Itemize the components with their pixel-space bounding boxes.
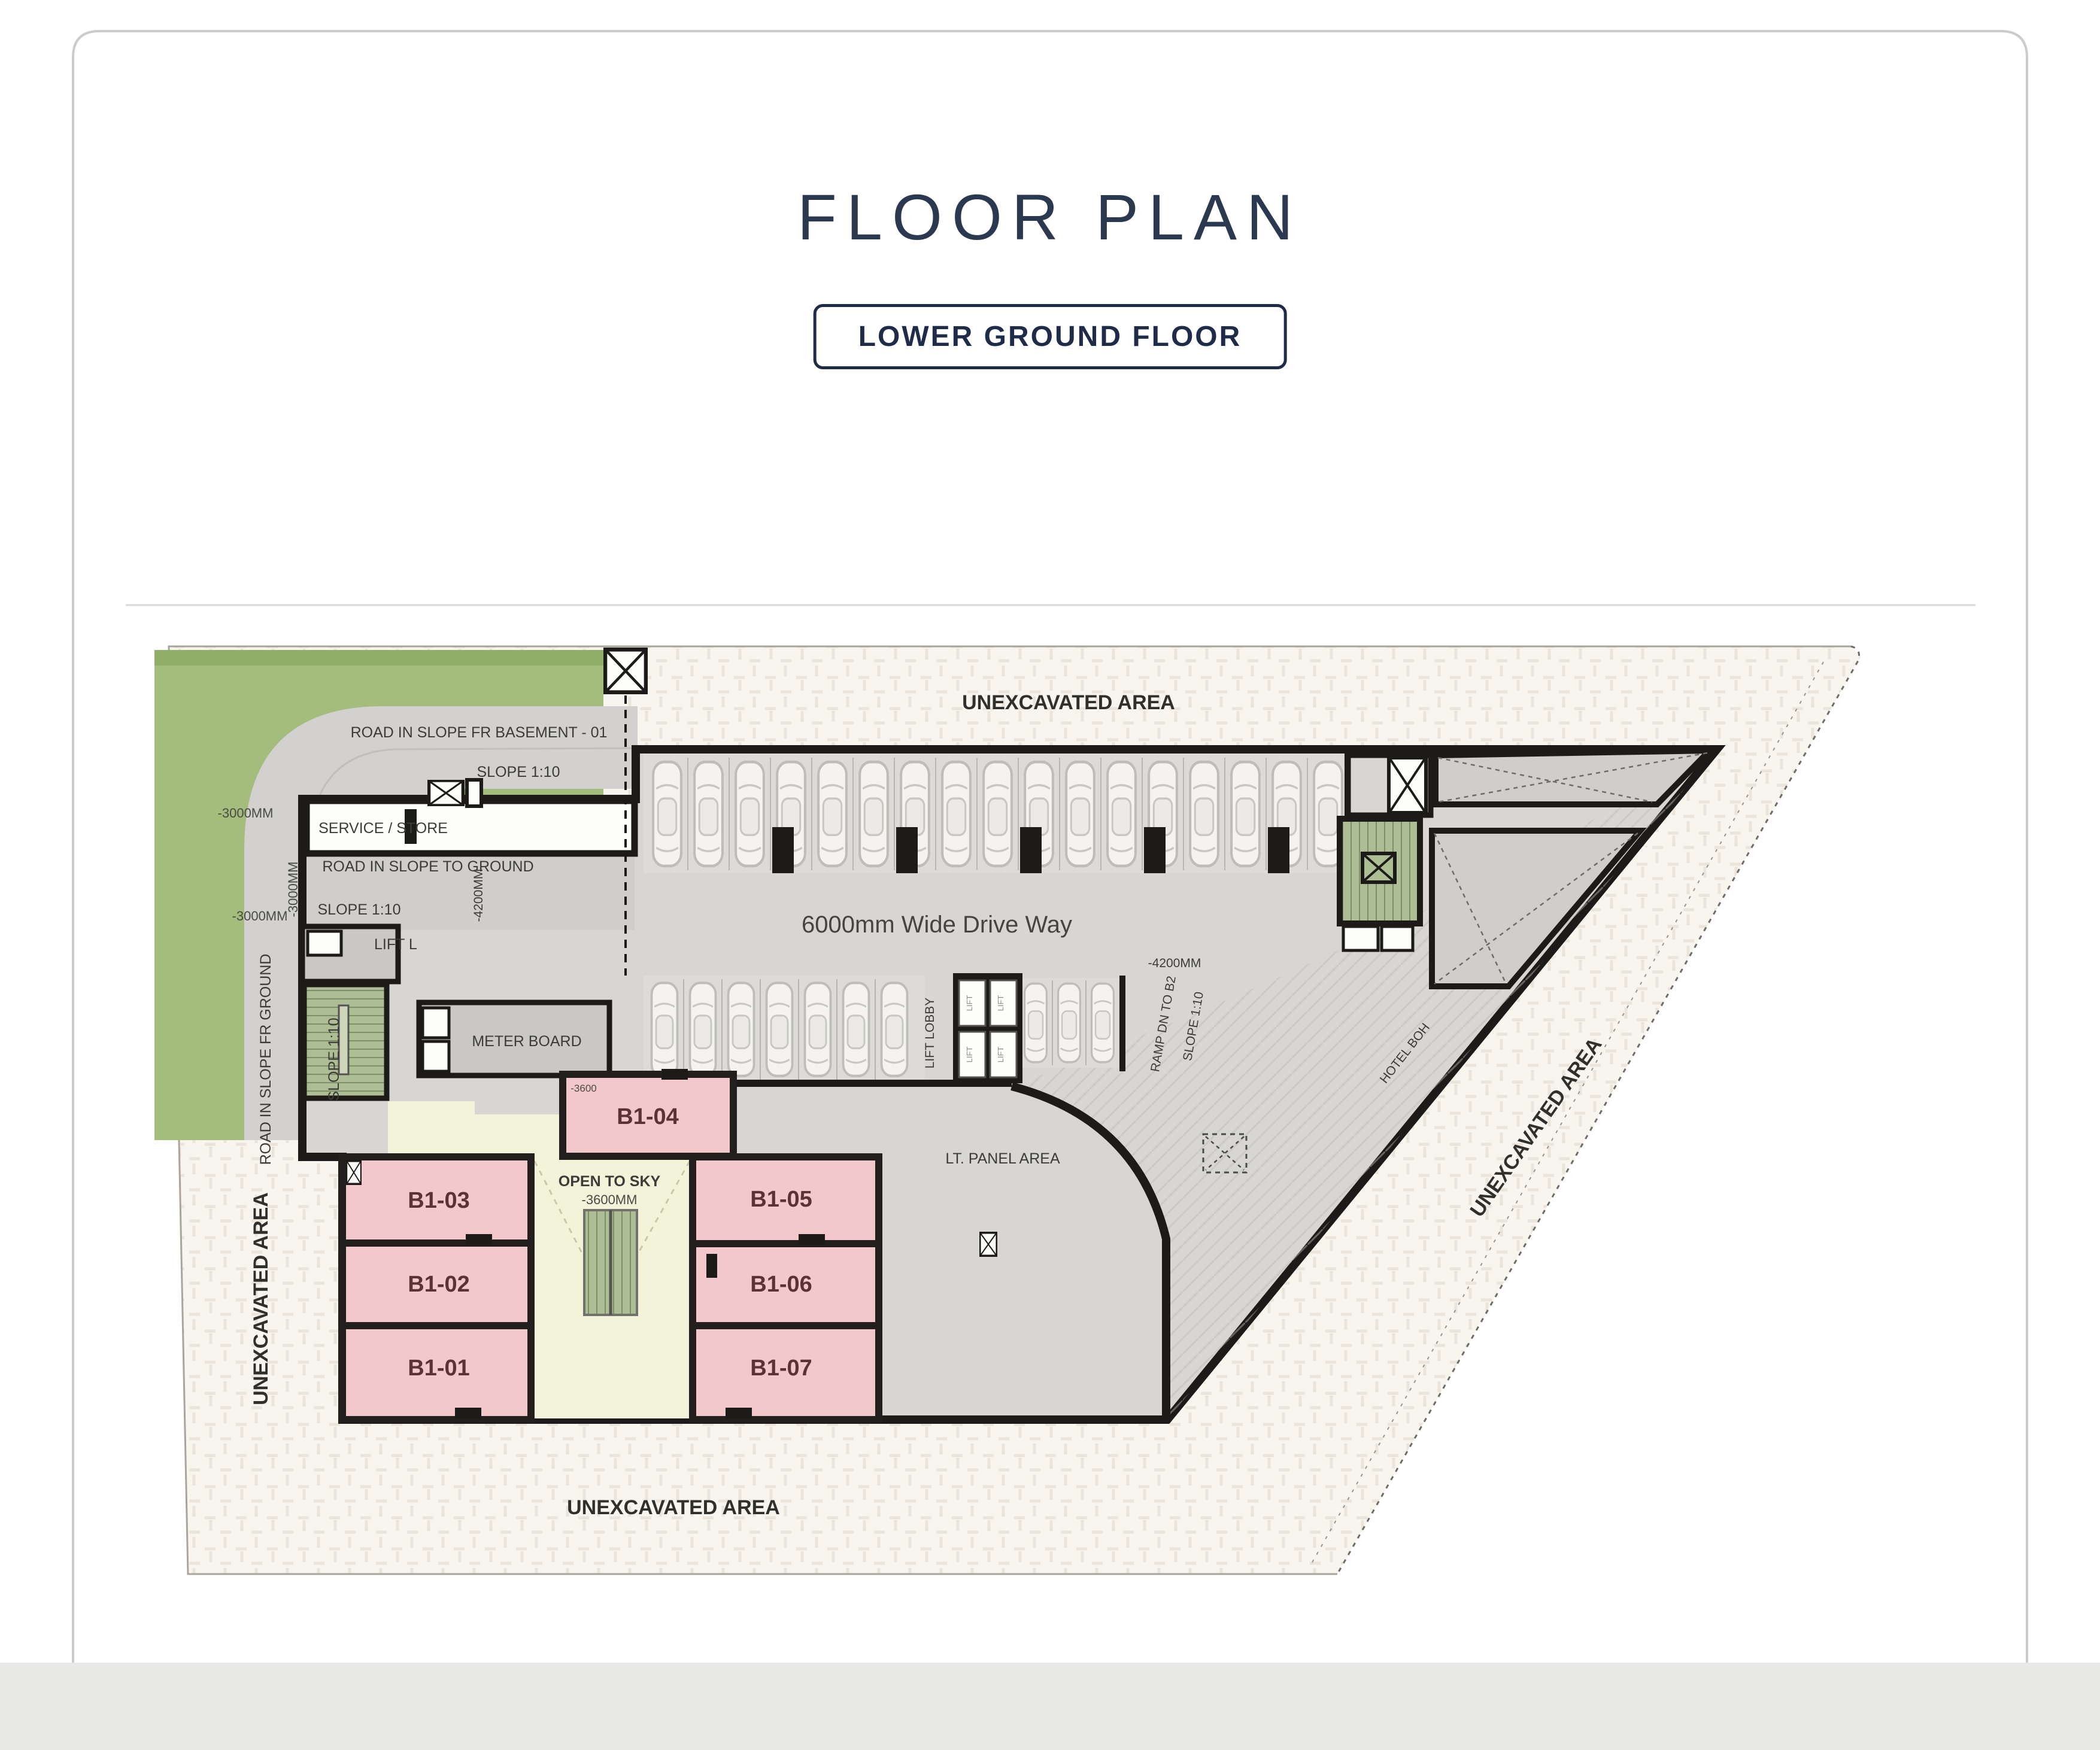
top-right-core (1340, 755, 1431, 950)
label-unit-B1-04: B1-04 (617, 1104, 679, 1129)
label-minus4200-b: -4200MM (1148, 956, 1201, 970)
column-box (467, 780, 481, 806)
car-icon (860, 762, 888, 866)
floor-plan-drawing: LIFT LIFT LIFT LIFT (0, 0, 2100, 1750)
label-unexcavated-left: UNEXCAVATED AREA (250, 1192, 272, 1405)
page-footer-band (0, 1663, 2100, 1750)
label-unit-B1-01: B1-01 (408, 1356, 470, 1381)
label-slope-block: SLOPE 1:10 (318, 901, 401, 918)
car-icon (805, 983, 831, 1075)
car-icon (942, 762, 970, 866)
column-marker-icon (347, 1161, 361, 1184)
car-icon (1092, 983, 1114, 1062)
label-service-store: SERVICE / STORE (318, 820, 448, 837)
column-marker-icon (605, 649, 646, 692)
label-minus3000-a: -3000MM (218, 806, 274, 821)
label-minus4200-a: -4200MM (472, 869, 485, 922)
car-icon (843, 983, 869, 1075)
lift-text: LIFT (996, 1047, 1005, 1063)
lift-text: LIFT (965, 1047, 974, 1063)
label-lift-lobby: LIFT LOBBY (923, 998, 937, 1069)
car-icon (694, 762, 723, 866)
car-icon (729, 983, 754, 1075)
label-minus3600: -3600 (570, 1083, 596, 1094)
label-lt-panel: LT. PANEL AREA (945, 1150, 1060, 1167)
car-icon (1066, 762, 1094, 866)
car-row (653, 758, 1342, 870)
label-unit-B1-02: B1-02 (408, 1272, 470, 1297)
stair-core-left (304, 985, 387, 1098)
label-road-to-ground: ROAD IN SLOPE TO GROUND (322, 858, 533, 875)
car-icon (736, 762, 764, 866)
lift-l-block (302, 926, 398, 982)
lift-text: LIFT (996, 995, 1005, 1011)
label-road-basement: ROAD IN SLOPE FR BASEMENT - 01 (351, 724, 608, 741)
car-icon (818, 762, 846, 866)
car-icon (690, 983, 716, 1075)
triangle-room-upper (1436, 751, 1710, 804)
label-unit-B1-07: B1-07 (750, 1356, 812, 1381)
label-lift-l: LIFT L (374, 936, 417, 953)
car-icon (653, 762, 681, 866)
car-icon (767, 983, 793, 1075)
parking-row-top (644, 749, 1348, 874)
lift-bank: LIFT LIFT LIFT LIFT (953, 973, 1022, 1083)
label-drive-way: 6000mm Wide Drive Way (802, 912, 1072, 938)
car-icon (984, 762, 1012, 866)
label-unit-B1-06: B1-06 (750, 1272, 812, 1297)
car-icon (1107, 762, 1136, 866)
lift-text: LIFT (965, 995, 974, 1011)
label-slope-top: SLOPE 1:10 (477, 764, 560, 780)
label-open-to-sky: OPEN TO SKY (559, 1173, 661, 1190)
car-icon (1025, 983, 1047, 1062)
label-unexcavated-top: UNEXCAVATED AREA (962, 691, 1175, 714)
label-unit-B1-05: B1-05 (750, 1187, 812, 1212)
car-row (652, 979, 908, 1080)
label-unit-B1-03: B1-03 (408, 1188, 470, 1213)
column-marker-icon (980, 1233, 997, 1256)
label-minus3000-b: -3000MM (286, 862, 301, 917)
label-slope-left: SLOPE 1:10 (326, 1018, 342, 1101)
car-icon (1231, 762, 1260, 866)
label-road-fr-ground: ROAD IN SLOPE FR GROUND (257, 954, 274, 1165)
car-icon (1058, 983, 1081, 1062)
column-marker-icon (429, 781, 463, 805)
car-icon (652, 983, 678, 1075)
label-minus3600mm: -3600MM (582, 1192, 638, 1207)
car-row (1025, 980, 1114, 1065)
label-meter-board: METER BOARD (472, 1033, 581, 1050)
car-icon (1190, 762, 1218, 866)
floor-plan-page: FLOOR PLAN LOWER GROUND FLOOR (0, 0, 2100, 1750)
label-unexcavated-bottom: UNEXCAVATED AREA (567, 1496, 780, 1519)
car-icon (882, 983, 908, 1075)
label-minus3000-c: -3000MM (232, 909, 288, 923)
